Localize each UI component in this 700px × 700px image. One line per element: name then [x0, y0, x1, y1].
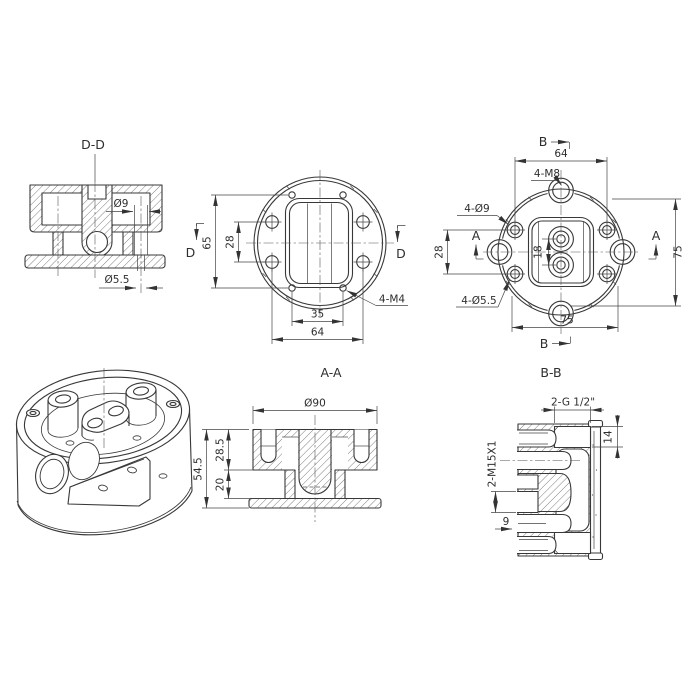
callout-4m4: 4-M4 — [379, 294, 406, 306]
sheet-background — [0, 0, 700, 700]
dim-75-right: 75 — [673, 245, 685, 258]
dim-75-bottom: 75 — [560, 315, 573, 327]
section-bb-label: B-B — [540, 365, 561, 380]
dim-64: 64 — [311, 327, 325, 339]
callout-2g12: 2-G 1/2" — [551, 397, 595, 409]
dim-18: 18 — [533, 245, 545, 258]
callout-4d55: 4-Ø5.5 — [461, 295, 496, 307]
dim-dia90: Ø90 — [304, 398, 326, 410]
dim-dia9: Ø9 — [114, 198, 129, 210]
cut-letter-d: D — [396, 246, 406, 261]
dim-545: 54.5 — [193, 457, 205, 480]
cut-letter-b: B — [539, 134, 548, 149]
dim-28-left: 28 — [434, 245, 446, 258]
callout-2m15x1: 2-M15X1 — [487, 441, 499, 488]
cut-letter-d: D — [186, 245, 196, 260]
callout-4d9: 4-Ø9 — [464, 203, 489, 215]
dim-14: 14 — [603, 430, 615, 444]
callout-4m8: 4-M8 — [534, 168, 560, 180]
dim-dia55: Ø5.5 — [105, 274, 130, 286]
dim-64-top: 64 — [554, 148, 568, 160]
dim-28: 28 — [225, 235, 237, 248]
dim-285: 28.5 — [215, 438, 227, 461]
dim-65: 65 — [202, 236, 214, 249]
drawing-sheet: D-D Ø9 Ø5.5 — [0, 0, 700, 700]
engineering-drawing: D-D Ø9 Ø5.5 — [0, 0, 700, 700]
cut-letter-b: B — [540, 336, 549, 351]
dim-20: 20 — [215, 478, 227, 491]
dim-35: 35 — [311, 309, 324, 321]
section-aa-label: A-A — [320, 365, 342, 380]
section-dd-label: D-D — [81, 137, 105, 152]
cut-letter-a: A — [652, 228, 661, 243]
dim-9: 9 — [503, 516, 510, 528]
